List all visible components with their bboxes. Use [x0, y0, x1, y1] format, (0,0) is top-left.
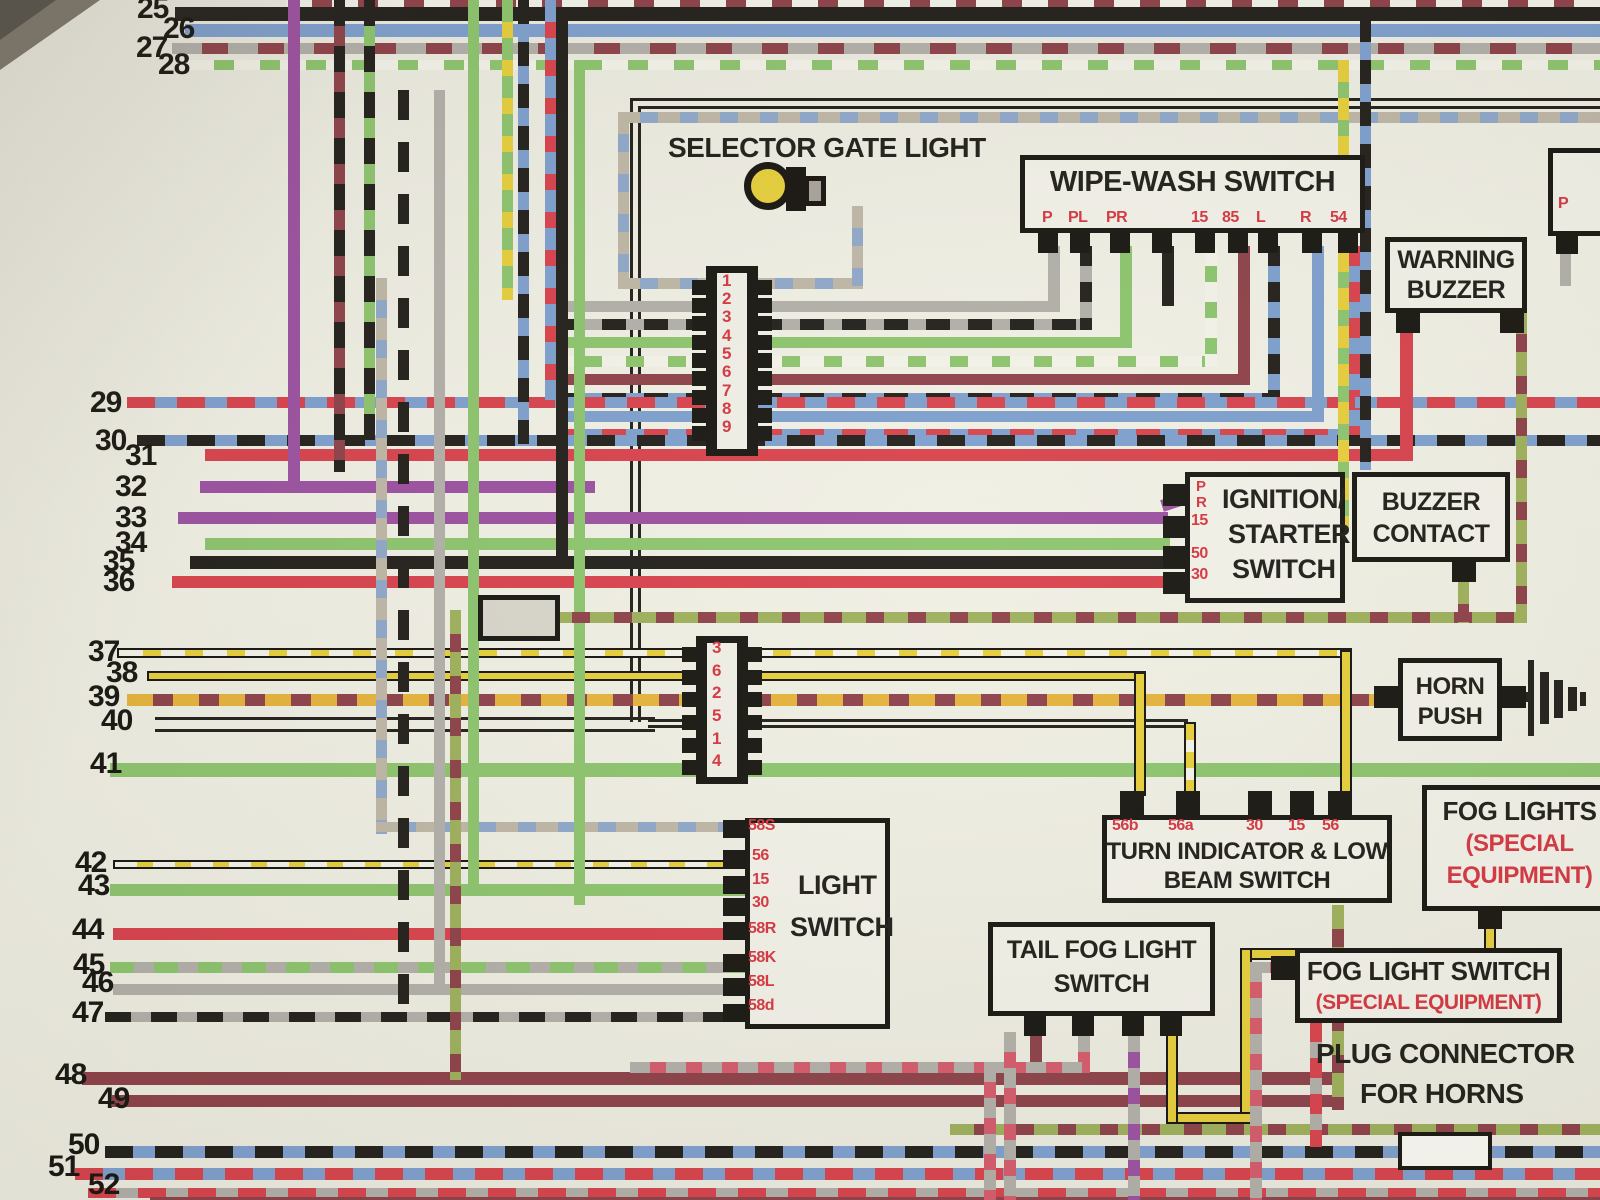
term-P: P — [1042, 210, 1052, 226]
wire-51 — [75, 1168, 1600, 1180]
wipe-wash-switch-label: WIPE-WASH SWITCH — [1020, 168, 1365, 197]
wire-maroon-green-low — [950, 1124, 1600, 1135]
connector-block-6pin-pin-left — [682, 760, 696, 775]
terminal-tab — [1290, 791, 1314, 815]
ignition-label-2: STARTER — [1228, 521, 1350, 548]
ground-icon — [1568, 687, 1577, 711]
tail-fog-label-2: SWITCH — [988, 972, 1215, 997]
ls-term-58R: 58R — [748, 921, 776, 937]
row-pin5 — [758, 356, 1217, 367]
row-pin3 — [758, 319, 1092, 330]
turn-term-56b: 56b — [1112, 818, 1138, 834]
connector-block-6pin-pin-left — [682, 715, 696, 730]
c6-3: 3 — [712, 639, 721, 656]
vert-green2 — [468, 0, 479, 895]
drop-15 — [1205, 246, 1217, 367]
terminal-tab — [723, 820, 745, 838]
terminal-tab — [1110, 233, 1130, 253]
c9-4: 4 — [722, 327, 731, 344]
terminal-tab — [1452, 562, 1476, 582]
light-bulb-icon — [804, 176, 826, 206]
fog-lights-label-3: EQUIPMENT) — [1422, 864, 1600, 888]
terminal-tab — [723, 978, 745, 996]
vert-1004 — [1004, 1032, 1016, 1200]
drop-56b — [1134, 672, 1146, 796]
c6-4: 4 — [712, 752, 721, 769]
wire-number-32: 32 — [115, 472, 146, 502]
connector-block-6pin-pin-left — [682, 692, 696, 707]
drop-L — [1268, 246, 1280, 404]
terminal-tab — [1271, 956, 1295, 980]
ls-term-58d: 58d — [748, 998, 774, 1014]
drop-PR — [1120, 246, 1132, 348]
drop-56a — [1184, 722, 1196, 796]
terminal-tab — [1500, 313, 1524, 333]
turn-term-56a: 56a — [1168, 818, 1193, 834]
connector-block-6pin-pin-right — [748, 760, 762, 775]
plug-connector-box — [1398, 1132, 1492, 1170]
vert-bluegray — [376, 278, 387, 834]
plug-connector-label-2: FOR HORNS — [1360, 1080, 1524, 1108]
wire-number-44: 44 — [72, 915, 103, 945]
terminal-tab — [723, 876, 745, 894]
turn-label-2: BEAM SWITCH — [1102, 869, 1392, 893]
thin-wire-h1 — [630, 98, 1600, 101]
connector-block-9pin-pin-right — [758, 408, 772, 423]
c9-2: 2 — [722, 290, 731, 307]
turn-term-15: 15 — [1288, 818, 1305, 834]
term-PL: PL — [1068, 210, 1087, 226]
wire-number-29: 29 — [90, 388, 121, 418]
wire-47 — [105, 1012, 745, 1022]
connector-block-9pin-pin-right — [758, 335, 772, 350]
c9-3: 3 — [722, 308, 731, 325]
buzzer-contact-box — [1352, 472, 1510, 562]
ground-icon — [1540, 672, 1549, 724]
drop-PL — [1080, 246, 1092, 330]
terminal-tab — [723, 954, 745, 972]
ls-term-30: 30 — [752, 895, 769, 911]
ls-term-58S: 58S — [748, 818, 775, 834]
term-15: 15 — [1191, 210, 1208, 226]
connector-block-9pin-pin-right — [758, 280, 772, 295]
term-PR: PR — [1106, 210, 1127, 226]
buzzer-right-drop — [1516, 310, 1527, 623]
wire-33 — [178, 512, 1168, 524]
row-pin2 — [758, 301, 1060, 312]
terminal-tab — [1038, 233, 1058, 253]
selector-loop-top — [618, 112, 1600, 123]
terminal-tab — [1374, 686, 1398, 708]
wire-number-26: 26 — [163, 14, 194, 44]
terminal-tab — [1328, 791, 1352, 815]
wire-number-52: 52 — [88, 1170, 119, 1200]
wire-42 — [113, 860, 745, 869]
terminal-tab — [723, 850, 745, 868]
light-switch-label-1: LIGHT — [798, 872, 877, 899]
connector-block-6pin-pin-left — [682, 670, 696, 685]
connector-block-9pin-pin-left — [692, 426, 706, 441]
wire-number-47: 47 — [72, 998, 103, 1028]
connector-block-9pin-pin-left — [692, 353, 706, 368]
wire-number-28: 28 — [158, 50, 189, 80]
ign-term-50: 50 — [1191, 546, 1208, 562]
ls-term-58K: 58K — [748, 950, 776, 966]
wire-number-49: 49 — [98, 1084, 129, 1114]
row-pin8 — [758, 411, 1324, 422]
wire-36 — [172, 576, 1185, 588]
ls-term-15: 15 — [752, 872, 769, 888]
vert-984 — [984, 1062, 996, 1200]
selector-loop-left — [618, 112, 629, 289]
light-switch-label-2: SWITCH — [790, 914, 893, 941]
connector-block-9pin-pin-right — [758, 353, 772, 368]
row-1062 — [630, 1062, 1090, 1073]
vert-black-dash — [398, 90, 409, 1022]
terminal-tab — [1163, 572, 1185, 594]
buzzer-contact-label-2: CONTACT — [1352, 522, 1510, 547]
drop-R — [1312, 246, 1324, 422]
wire-number-30: 30 — [95, 426, 126, 456]
fog-lights-label-2: (SPECIAL — [1422, 832, 1600, 856]
connector-block-9pin-pin-left — [692, 316, 706, 331]
connector-block-6pin-pin-left — [682, 647, 696, 662]
wire-46 — [113, 984, 745, 995]
connector-block-9pin-pin-right — [758, 298, 772, 313]
connector-block-6pin-pin-right — [748, 715, 762, 730]
connector-block-9pin-pin-right — [758, 316, 772, 331]
cutbox-stub — [1560, 252, 1571, 286]
terminal-tab — [723, 898, 745, 916]
wire-number-43: 43 — [78, 871, 109, 901]
connector-block-9pin-pin-right — [758, 390, 772, 405]
ign-term-R: R — [1196, 495, 1206, 510]
ign-term-30: 30 — [1191, 567, 1208, 583]
inline-component-box — [478, 595, 560, 641]
turn-term-56: 56 — [1322, 818, 1339, 834]
light-bulb-icon — [744, 162, 792, 210]
c6-1: 1 — [712, 730, 721, 747]
fog-yellow-4 — [1166, 1112, 1252, 1124]
wire-number-31: 31 — [125, 441, 156, 471]
buzzer-horizontal — [548, 612, 1527, 623]
terminal-tab — [1163, 516, 1185, 538]
wire-number-41: 41 — [90, 749, 121, 779]
row-58S — [376, 822, 745, 832]
ignition-label-3: SWITCH — [1232, 556, 1335, 583]
tail-drop-3 — [1128, 1032, 1140, 1200]
terminal-tab — [1556, 236, 1578, 254]
connector-block-9pin-pin-left — [692, 335, 706, 350]
tail-fog-label-1: TAIL FOG LIGHT — [988, 938, 1215, 963]
wire-44 — [113, 928, 745, 940]
c9-5: 5 — [722, 345, 731, 362]
wire-26 — [185, 24, 1600, 37]
selector-gate-light-label: SELECTOR GATE LIGHT — [668, 134, 986, 162]
vert-green-black — [364, 0, 375, 440]
connector-block-9pin-pin-right — [758, 426, 772, 441]
c6-6: 6 — [712, 662, 721, 679]
vert-gray — [434, 90, 445, 990]
warning-buzzer-label-2: BUZZER — [1385, 278, 1527, 303]
terminal-tab — [1248, 791, 1272, 815]
ignition-label-1: IGNITION/ — [1222, 486, 1345, 513]
vert-blue-black2 — [1360, 18, 1371, 470]
drop-54 — [1348, 246, 1360, 440]
terminal-tab — [1024, 1016, 1046, 1036]
terminal-tab — [1176, 791, 1200, 815]
tail-drop-1 — [1030, 1032, 1042, 1084]
wire-number-36: 36 — [103, 567, 134, 597]
connector-block-6pin-pin-right — [748, 670, 762, 685]
term-R: R — [1300, 210, 1311, 226]
terminal-tab — [1163, 484, 1185, 506]
terminal-tab — [1302, 233, 1322, 253]
light-bulb-icon — [786, 167, 806, 211]
terminal-tab — [1152, 233, 1172, 253]
c9-1: 1 — [722, 272, 731, 289]
connector-block-9pin-pin-left — [692, 298, 706, 313]
connector-block-6pin-pin-right — [748, 738, 762, 753]
wire-28 — [188, 60, 1600, 70]
terminal-tab — [1228, 233, 1248, 253]
thin-wire-h2 — [638, 106, 1600, 109]
wire-number-51: 51 — [48, 1152, 79, 1182]
wire-50 — [105, 1146, 1600, 1158]
wire-41 — [110, 763, 1600, 777]
fls-wire-v — [1250, 962, 1262, 1200]
ground-icon — [1528, 660, 1534, 736]
ls-term-56: 56 — [752, 848, 769, 864]
terminal-tab — [1122, 1016, 1144, 1036]
terminal-tab — [1070, 233, 1090, 253]
ground-icon — [1554, 680, 1563, 718]
drop-56 — [1340, 650, 1352, 796]
vert-maroon-black — [334, 0, 345, 472]
terminal-tab — [1478, 911, 1502, 929]
vert-green3 — [574, 60, 585, 905]
terminal-tab — [1258, 233, 1278, 253]
c9-9: 9 — [722, 418, 731, 435]
vert-green-yellow — [1338, 60, 1349, 530]
terminal-tab — [1502, 686, 1526, 708]
turn-label-1: TURN INDICATOR & LOW — [1102, 840, 1392, 864]
term-54: 54 — [1330, 210, 1347, 226]
wire-number-48: 48 — [55, 1060, 86, 1090]
row-pin4 — [758, 337, 1132, 348]
terminal-tab — [1396, 313, 1420, 333]
fls-label-1: FOG LIGHT SWITCH — [1295, 958, 1562, 984]
horn-push-label-1: HORN — [1398, 675, 1502, 699]
drop-85 — [1238, 246, 1250, 385]
horn-push-label-2: PUSH — [1398, 705, 1502, 729]
thin-wire-v1 — [630, 98, 633, 722]
terminal-tab — [723, 922, 745, 940]
connector-block-9pin-pin-left — [692, 280, 706, 295]
terminal-tab — [1160, 1016, 1182, 1036]
wire-number-46: 46 — [82, 968, 113, 998]
terminal-tab — [1195, 233, 1215, 253]
plug-connector-label-1: PLUG CONNECTOR — [1316, 1040, 1575, 1068]
connector-block-9pin-pin-left — [692, 408, 706, 423]
drop-P — [1048, 246, 1060, 312]
fog-lights-label-1: FOG LIGHTS — [1422, 798, 1600, 824]
buzzer-contact-label-1: BUZZER — [1352, 490, 1510, 515]
c9-8: 8 — [722, 400, 731, 417]
row-pin6 — [758, 374, 1250, 385]
wire-number-40: 40 — [101, 706, 132, 736]
terminal-tab — [1120, 791, 1144, 815]
wire-45 — [110, 962, 745, 973]
cutoff-box — [1548, 148, 1600, 236]
wire-43 — [110, 884, 745, 896]
cutoff-term-P: P — [1558, 196, 1568, 212]
vert-maroon-green — [450, 610, 461, 1080]
wire-49 — [112, 1095, 1344, 1107]
fls-label-2: (SPECIAL EQUIPMENT) — [1295, 992, 1562, 1013]
ign-term-P: P — [1196, 479, 1206, 494]
warning-buzzer-label-1: WARNING — [1385, 248, 1527, 273]
vert-purple — [288, 0, 300, 493]
terminal-tab — [1163, 546, 1185, 568]
turn-term-30: 30 — [1246, 818, 1263, 834]
wire-48 — [82, 1072, 1344, 1085]
wire-34 — [205, 538, 1170, 550]
wire-38 — [147, 671, 1146, 681]
vert-black — [556, 7, 568, 569]
vert-red-blue — [545, 0, 556, 400]
wire-25 — [175, 7, 1600, 21]
c9-7: 7 — [722, 382, 731, 399]
buzzer-contact-drop — [1458, 580, 1469, 623]
wire-27 — [172, 43, 1600, 54]
selector-loop-right — [852, 206, 863, 289]
vert-yellow-green — [502, 0, 513, 300]
terminal-tab — [1338, 233, 1358, 253]
connector-block-9pin-pin-left — [692, 390, 706, 405]
terminal-tab — [1072, 1016, 1094, 1036]
wiring-diagram-photo: SELECTOR GATE LIGHTWIPE-WASH SWITCHPPLPR… — [0, 0, 1600, 1200]
c9-6: 6 — [722, 363, 731, 380]
ground-icon — [1580, 692, 1586, 706]
wire-29 — [127, 397, 1600, 408]
connector-block-6pin-pin-right — [748, 692, 762, 707]
connector-block-6pin-pin-right — [748, 647, 762, 662]
vert-blue-black — [518, 0, 529, 446]
connector-block-9pin-pin-right — [758, 371, 772, 386]
connector-block-6pin-pin-left — [682, 738, 696, 753]
c6-5: 5 — [712, 707, 721, 724]
ign-term-15: 15 — [1191, 513, 1208, 529]
wire-35 — [190, 556, 1185, 569]
connector-block-9pin-pin-left — [692, 371, 706, 386]
terminal-tab — [723, 1004, 745, 1022]
term-85: 85 — [1222, 210, 1239, 226]
c6-2: 2 — [712, 684, 721, 701]
ls-term-58L: 58L — [748, 974, 774, 990]
wire-30 — [137, 435, 1600, 446]
term-L: L — [1256, 210, 1265, 226]
drop-t4 — [1162, 246, 1174, 306]
